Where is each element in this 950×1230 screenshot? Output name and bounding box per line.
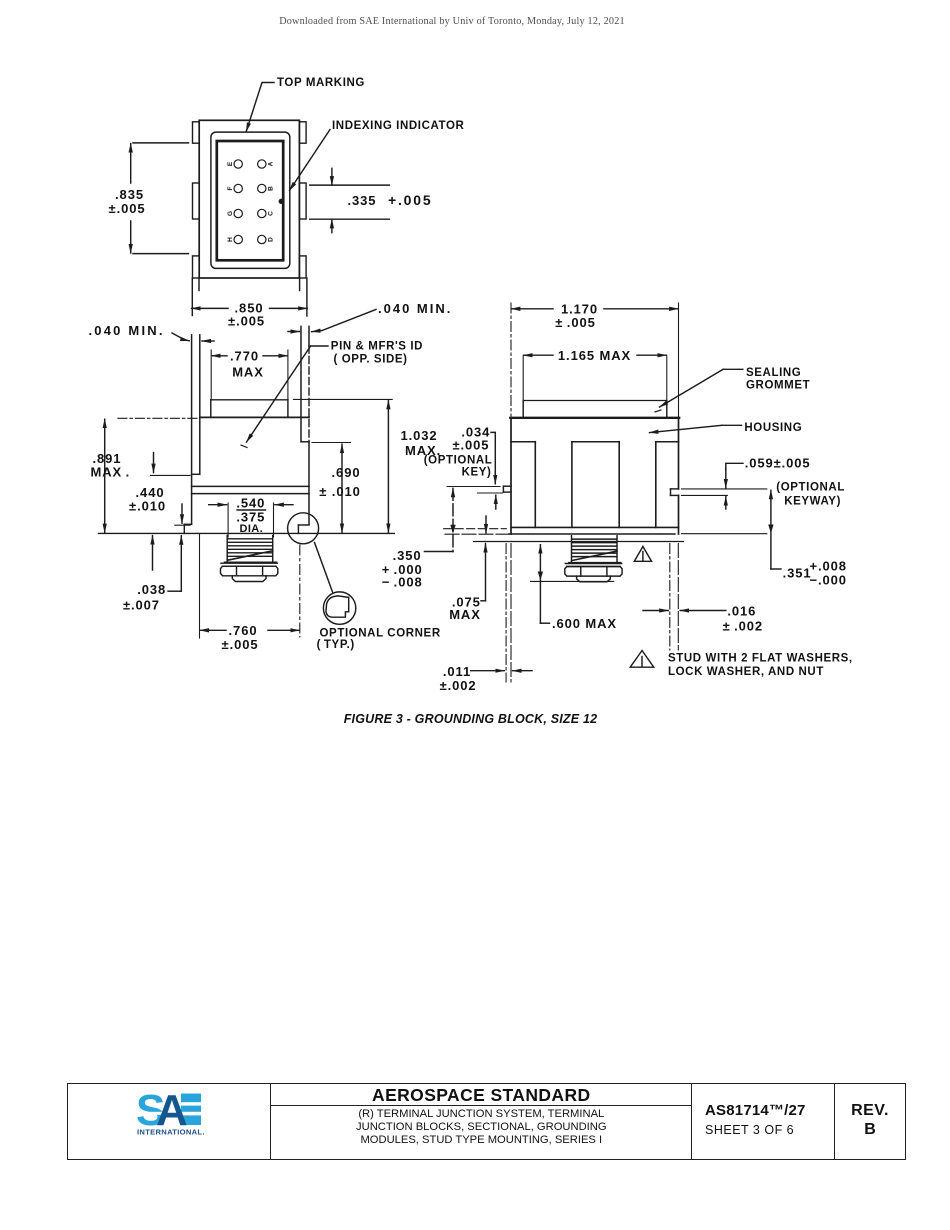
svg-text:.038: .038	[137, 582, 166, 597]
svg-text:±.002: ±.002	[440, 678, 477, 693]
svg-text:OPTIONAL CORNER: OPTIONAL CORNER	[320, 628, 441, 640]
svg-text:MAX: MAX	[232, 365, 264, 380]
svg-text:( OPP. SIDE): ( OPP. SIDE)	[334, 354, 408, 366]
svg-text:±.005: ±.005	[228, 314, 265, 329]
svg-text:.335: .335	[348, 193, 377, 208]
svg-text:.040 MIN.: .040 MIN.	[89, 323, 165, 338]
svg-text:± .002: ± .002	[723, 619, 763, 634]
svg-text:TOP MARKING: TOP MARKING	[277, 77, 365, 89]
svg-text:+.008: +.008	[810, 559, 847, 574]
svg-text:PIN & MFR'S ID: PIN & MFR'S ID	[331, 341, 423, 353]
svg-text:G: G	[227, 211, 234, 216]
svg-text:MAX: MAX	[449, 607, 481, 622]
svg-text:F: F	[227, 186, 234, 190]
svg-text:±.005: ±.005	[222, 637, 259, 652]
svg-text:1.032: 1.032	[401, 428, 438, 443]
svg-text:±.005: ±.005	[109, 201, 146, 216]
svg-text:.835: .835	[115, 187, 144, 202]
svg-text:(OPTIONAL: (OPTIONAL	[424, 455, 493, 467]
svg-text:B: B	[267, 186, 274, 191]
svg-text:D: D	[267, 237, 274, 242]
svg-text:INTERNATIONAL.: INTERNATIONAL.	[137, 1128, 205, 1137]
svg-text:− .008: − .008	[382, 575, 423, 590]
svg-text:.770: .770	[230, 349, 259, 364]
svg-text:.540: .540	[236, 496, 265, 511]
svg-text:GROMMET: GROMMET	[746, 380, 810, 392]
svg-text:.690: .690	[332, 465, 361, 480]
svg-text:±.005: ±.005	[452, 438, 489, 453]
svg-text:LOCK WASHER, AND NUT: LOCK WASHER, AND NUT	[668, 666, 824, 678]
svg-text:−.000: −.000	[810, 573, 847, 588]
svg-text:( TYP.): ( TYP.)	[317, 639, 355, 651]
svg-text:KEY): KEY)	[462, 467, 492, 479]
svg-text:E: E	[227, 161, 234, 166]
svg-text:.059±.005: .059±.005	[745, 456, 811, 471]
svg-text:.011: .011	[443, 664, 471, 679]
svg-text:+.005: +.005	[388, 192, 432, 208]
svg-text:(OPTIONAL: (OPTIONAL	[776, 482, 845, 494]
svg-text:HOUSING: HOUSING	[744, 422, 802, 434]
svg-text:± .005: ± .005	[555, 315, 595, 330]
svg-text:.760: .760	[229, 623, 258, 638]
svg-text:±.010: ±.010	[129, 499, 166, 514]
svg-text:MAX .: MAX .	[91, 465, 131, 480]
svg-text:1.165 MAX: 1.165 MAX	[558, 348, 631, 363]
svg-text:.040 MIN.: .040 MIN.	[378, 301, 452, 316]
svg-text:SEALING: SEALING	[746, 367, 801, 379]
svg-text:H: H	[227, 237, 234, 242]
svg-text:± .010: ± .010	[319, 484, 360, 499]
svg-text:KEYWAY): KEYWAY)	[784, 496, 841, 508]
svg-text:.351: .351	[783, 566, 812, 581]
svg-text:DIA.: DIA.	[239, 523, 263, 535]
svg-text:.016: .016	[727, 604, 756, 619]
svg-text:INDEXING INDICATOR: INDEXING INDICATOR	[332, 120, 465, 132]
svg-text:±.007: ±.007	[123, 598, 160, 613]
svg-text:C: C	[267, 211, 274, 216]
svg-text:STUD WITH 2 FLAT WASHERS,: STUD WITH 2 FLAT WASHERS,	[668, 653, 853, 665]
svg-text:.350: .350	[393, 548, 422, 563]
svg-text:A: A	[267, 161, 274, 166]
svg-text:.600 MAX: .600 MAX	[552, 616, 617, 631]
